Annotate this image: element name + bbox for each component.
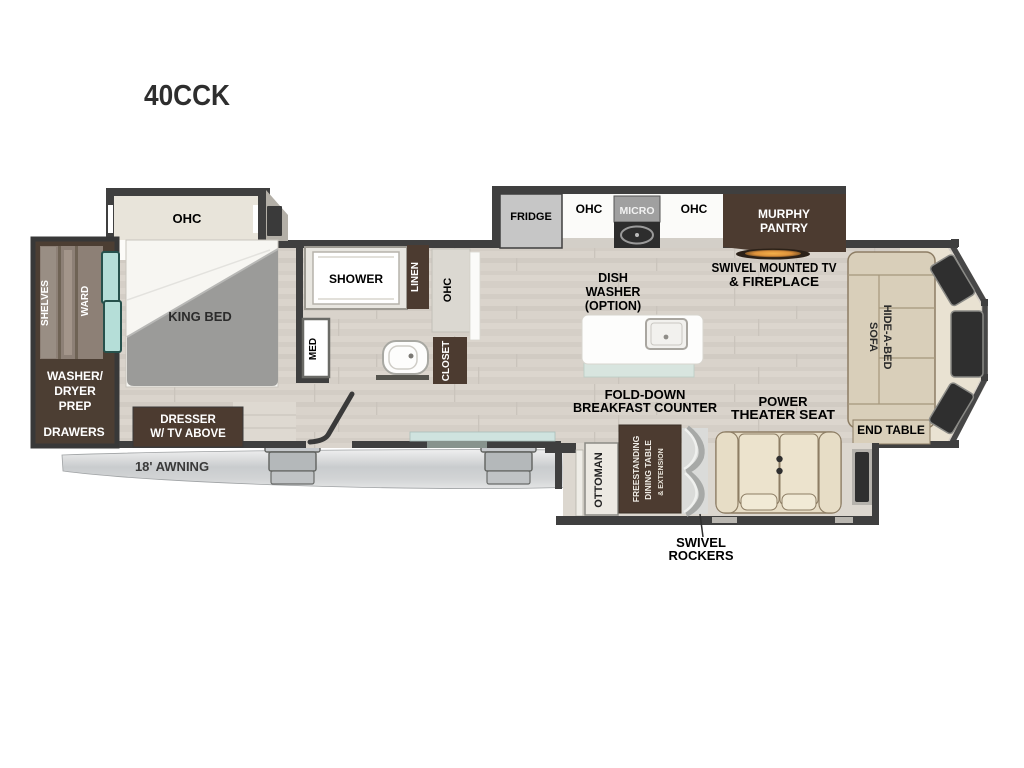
svg-text:MICRO: MICRO (620, 205, 655, 217)
svg-text:PREP: PREP (59, 399, 92, 413)
svg-text:OTTOMAN: OTTOMAN (593, 452, 605, 507)
svg-text:18' AWNING: 18' AWNING (135, 459, 209, 474)
svg-text:HIDE-A-BED: HIDE-A-BED (881, 305, 893, 370)
svg-text:KING BED: KING BED (168, 309, 232, 324)
svg-text:SOFA: SOFA (867, 322, 879, 352)
svg-text:ROCKERS: ROCKERS (668, 548, 733, 563)
svg-text:OHC: OHC (576, 202, 603, 216)
svg-text:(OPTION): (OPTION) (585, 299, 641, 313)
svg-text:OHC: OHC (173, 211, 203, 226)
svg-text:40CCK: 40CCK (144, 80, 230, 112)
svg-text:BREAKFAST COUNTER: BREAKFAST COUNTER (573, 400, 718, 415)
svg-text:LINEN: LINEN (410, 262, 421, 292)
svg-text:WASHER/: WASHER/ (47, 369, 104, 383)
svg-text:& FIREPLACE: & FIREPLACE (729, 274, 819, 289)
svg-text:FREESTANDING: FREESTANDING (631, 435, 641, 502)
svg-text:CLOSET: CLOSET (441, 341, 452, 382)
svg-text:W/ TV ABOVE: W/ TV ABOVE (150, 428, 226, 440)
svg-text:SHOWER: SHOWER (329, 272, 383, 286)
svg-text:SWIVEL MOUNTED TV: SWIVEL MOUNTED TV (712, 260, 837, 275)
svg-text:DRESSER: DRESSER (160, 414, 216, 426)
svg-text:FRIDGE: FRIDGE (510, 211, 552, 223)
svg-text:DRAWERS: DRAWERS (43, 425, 104, 439)
svg-text:DINING TABLE: DINING TABLE (643, 440, 653, 500)
svg-text:SHELVES: SHELVES (40, 280, 51, 326)
svg-text:& EXTENSION: & EXTENSION (658, 448, 665, 495)
svg-text:MURPHY: MURPHY (758, 207, 810, 221)
svg-text:DISH: DISH (598, 271, 628, 285)
svg-text:MED: MED (308, 338, 319, 360)
svg-text:WASHER: WASHER (586, 285, 641, 299)
svg-text:THEATER SEAT: THEATER SEAT (731, 407, 835, 422)
svg-text:PANTRY: PANTRY (760, 221, 808, 235)
svg-text:WARD: WARD (80, 286, 91, 317)
svg-text:END TABLE: END TABLE (857, 423, 925, 437)
svg-text:DRYER: DRYER (54, 384, 96, 398)
svg-text:OHC: OHC (442, 278, 454, 303)
svg-text:OHC: OHC (681, 202, 708, 216)
